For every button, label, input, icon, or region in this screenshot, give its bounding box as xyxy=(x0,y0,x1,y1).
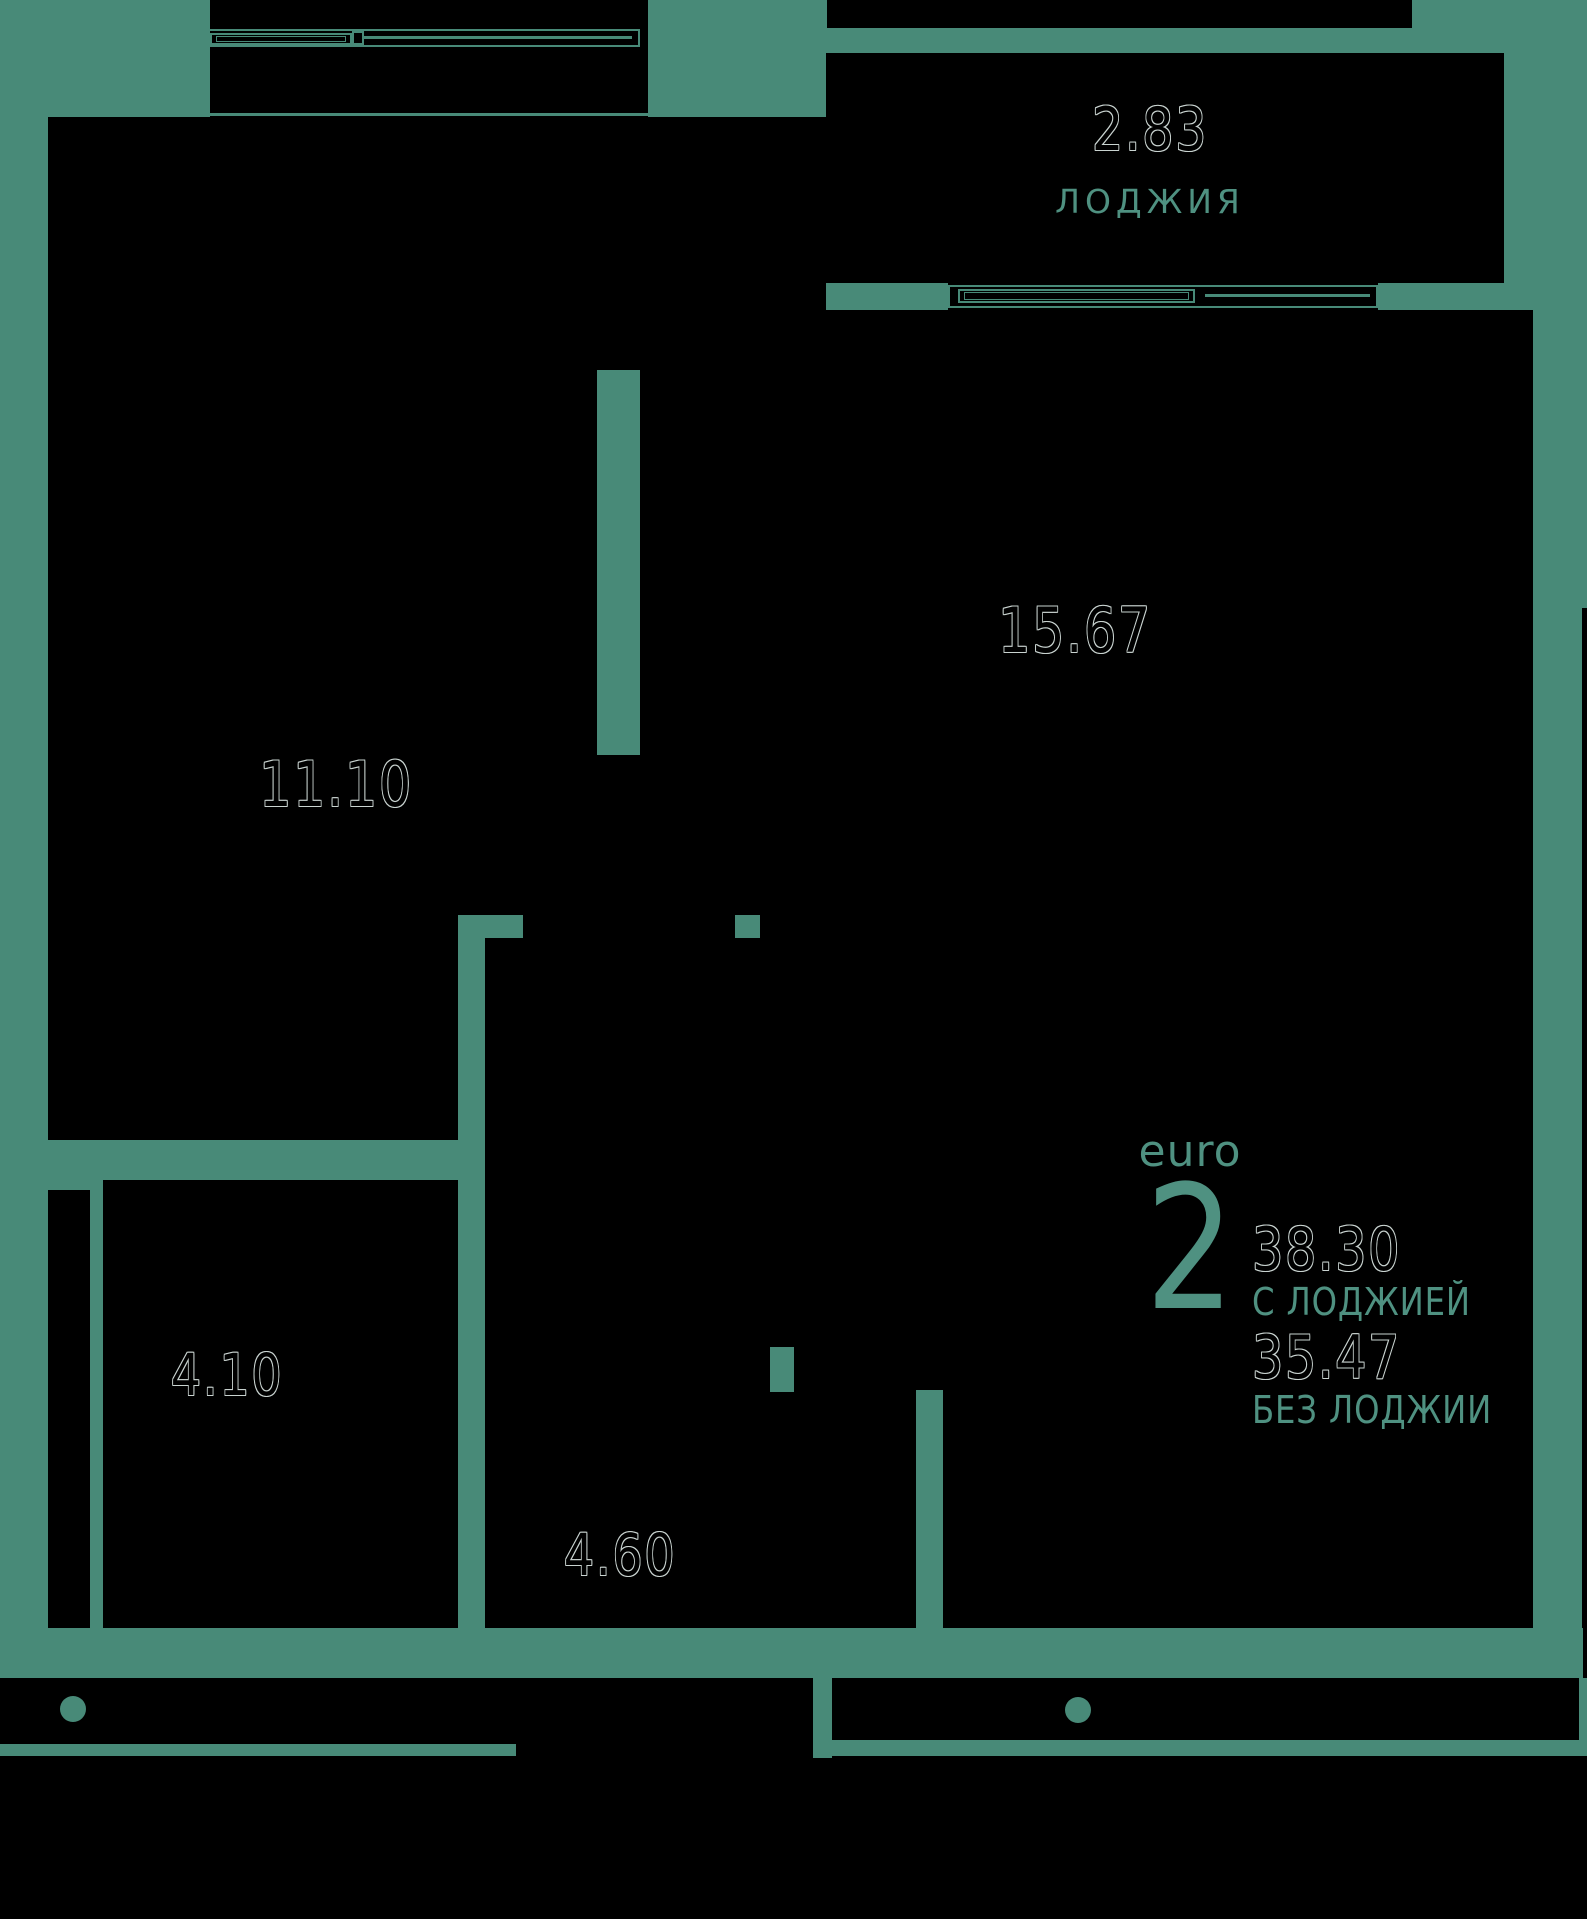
bedroom-wall-face-line xyxy=(196,113,648,116)
area-with-loggia-caption: С ЛОДЖИЕЙ xyxy=(1252,1283,1471,1321)
wall-hallway-living xyxy=(916,1390,943,1628)
wall-stub-left xyxy=(458,915,523,938)
floor-plan: 2.83 ЛОДЖИЯ 15.67 11.10 4.10 4.60 euro 2… xyxy=(0,0,1587,1919)
loggia-name-label: ЛОДЖИЯ xyxy=(1020,185,1280,218)
bottom-exterior-band xyxy=(0,1756,1587,1919)
wall-bathroom-hallway xyxy=(458,915,485,1628)
hallway-area-label: 4.60 xyxy=(526,1526,715,1584)
bedroom-window-bay xyxy=(210,0,648,117)
loggia-inner-window-sash-inner-icon xyxy=(964,292,1189,300)
bedroom-window-sash-inner-icon xyxy=(216,36,346,42)
loggia-outer-window-glass-line xyxy=(1109,40,1402,43)
right-edge-line xyxy=(1582,608,1587,1678)
wall-stub-right xyxy=(735,915,760,938)
loggia-inner-window-glass-line xyxy=(1205,294,1370,297)
shaft-niche xyxy=(48,1190,90,1628)
entry-door-hinge-dot xyxy=(60,1696,86,1722)
bedroom-upper-band xyxy=(48,117,826,370)
niche-divider-wall xyxy=(90,1190,103,1628)
neighbor-door-hinge-dot xyxy=(1065,1697,1091,1723)
bottom-wall-left xyxy=(0,1628,516,1678)
loggia-outer-window-sash-inner-icon xyxy=(846,39,1089,46)
living-room-area-label: 15.67 xyxy=(981,600,1170,662)
bedroom-window-glass-line xyxy=(364,36,632,39)
area-with-loggia-value: 38.30 xyxy=(1252,1220,1401,1280)
wall-leg xyxy=(813,1678,832,1758)
bottom-wall-right xyxy=(755,1628,1583,1678)
bedroom-window-divider-icon xyxy=(352,31,364,45)
door-jamb-hallway xyxy=(770,1347,794,1392)
hallway-room xyxy=(485,938,916,1628)
neighbor-threshold-right xyxy=(832,1678,1579,1740)
entry-door-opening xyxy=(516,1678,755,1758)
threshold-gap xyxy=(755,1678,813,1758)
loggia-room xyxy=(826,53,1504,283)
bathroom-area-label: 4.10 xyxy=(133,1346,322,1404)
living-room-top xyxy=(826,310,1533,370)
loggia-parapet-strip xyxy=(827,0,1412,30)
area-without-loggia-caption: БЕЗ ЛОДЖИИ xyxy=(1252,1391,1492,1429)
loggia-area-label: 2.83 xyxy=(1060,100,1240,160)
entry-door-leaf-line xyxy=(0,1744,516,1756)
rooms-count-label: 2 xyxy=(1133,1172,1248,1327)
loggia-outer-window-divider-icon xyxy=(1095,33,1109,51)
neighbor-door-leaf-line xyxy=(832,1740,1581,1756)
area-without-loggia-value: 35.47 xyxy=(1252,1328,1401,1388)
bedroom-area-label: 11.10 xyxy=(242,754,431,816)
